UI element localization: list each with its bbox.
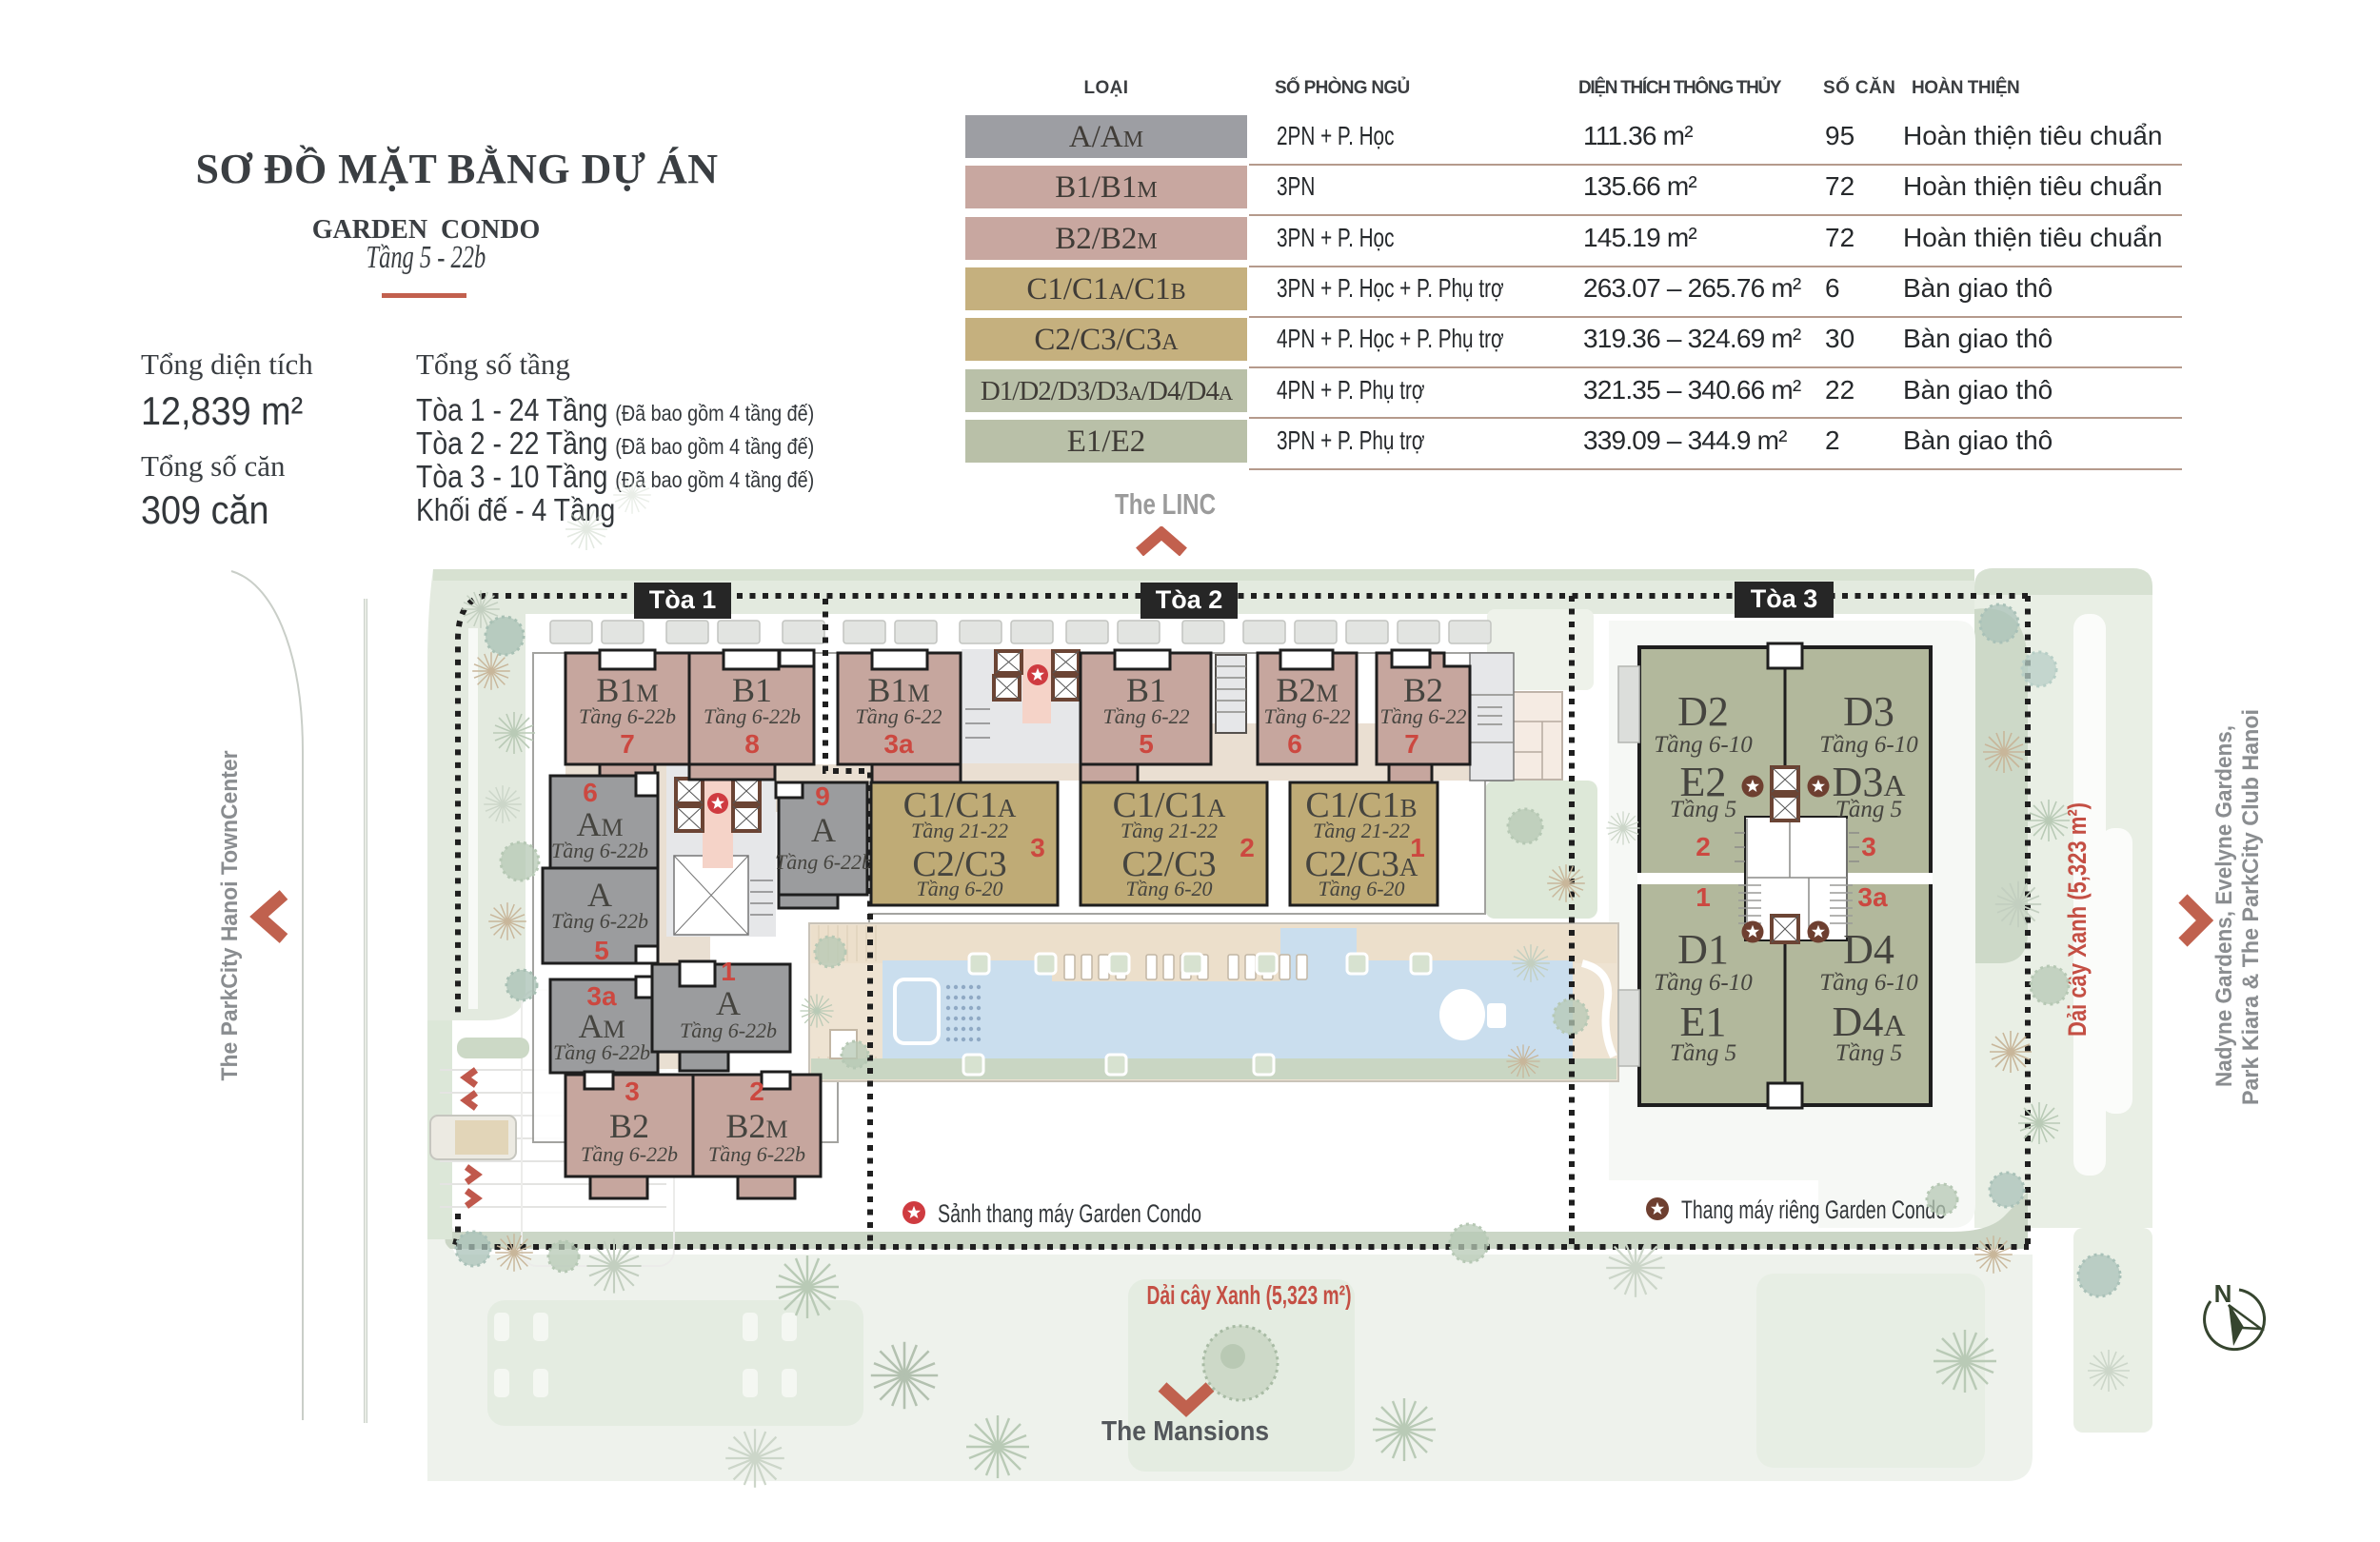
svg-text:3: 3 (625, 1077, 640, 1106)
svg-text:D1: D1 (1677, 926, 1729, 973)
svg-text:3a: 3a (883, 729, 914, 759)
svg-text:Tầng 5: Tầng 5 (1670, 797, 1736, 822)
svg-text:6: 6 (1287, 729, 1302, 759)
svg-text:B1: B1 (1126, 671, 1166, 709)
svg-text:Tầng 6-20: Tầng 6-20 (1125, 877, 1212, 900)
svg-text:Tầng 5: Tầng 5 (1835, 797, 1902, 822)
svg-text:Tầng 6-22b: Tầng 6-22b (553, 1040, 650, 1064)
svg-text:8: 8 (744, 729, 760, 759)
svg-text:1: 1 (1410, 833, 1425, 862)
svg-text:Tầng 6-22: Tầng 6-22 (1379, 704, 1466, 728)
svg-text:Tòa 1: Tòa 1 (649, 585, 717, 614)
svg-text:6: 6 (583, 778, 598, 807)
svg-text:Tầng 6-22b: Tầng 6-22b (708, 1142, 805, 1166)
svg-text:B1: B1 (732, 671, 772, 709)
svg-text:7: 7 (620, 729, 635, 759)
svg-text:D2: D2 (1677, 688, 1729, 735)
svg-text:A: A (716, 984, 741, 1022)
svg-text:2: 2 (749, 1077, 764, 1106)
svg-text:Nadyne Gardens, Evelyne Garden: Nadyne Gardens, Evelyne Gardens, (2211, 725, 2237, 1087)
svg-text:1: 1 (721, 957, 736, 986)
svg-text:The ParkCity Hanoi TownCenter: The ParkCity Hanoi TownCenter (217, 751, 243, 1081)
svg-text:Tầng 6-22b: Tầng 6-22b (551, 909, 648, 933)
svg-text:Tầng 6-20: Tầng 6-20 (1318, 877, 1404, 900)
svg-text:5: 5 (1139, 729, 1154, 759)
svg-text:N: N (2214, 1279, 2232, 1308)
svg-text:Tầng 6-22b: Tầng 6-22b (579, 704, 676, 728)
svg-text:Tầng 6-22: Tầng 6-22 (1102, 704, 1189, 728)
svg-text:A: A (587, 876, 612, 914)
svg-text:Tầng 6-10: Tầng 6-10 (1654, 970, 1753, 996)
svg-text:Tầng 6-10: Tầng 6-10 (1819, 732, 1918, 758)
svg-text:Tòa 3: Tòa 3 (1751, 584, 1818, 613)
svg-text:1: 1 (1696, 882, 1711, 912)
svg-text:Tầng 6-22b: Tầng 6-22b (775, 850, 872, 874)
svg-text:2: 2 (1696, 832, 1711, 861)
svg-text:Tầng 6-10: Tầng 6-10 (1819, 970, 1918, 996)
svg-text:3a: 3a (1857, 882, 1888, 912)
svg-text:Dải cây Xanh (5,323 m²): Dải cây Xanh (5,323 m²) (2063, 802, 2092, 1037)
svg-text:Park Kiara & The ParkCity Club: Park Kiara & The ParkCity Club Hanoi (2238, 709, 2264, 1105)
svg-text:3: 3 (1030, 833, 1045, 862)
svg-text:Tầng 6-22b: Tầng 6-22b (704, 704, 801, 728)
svg-text:Tầng 6-22b: Tầng 6-22b (581, 1142, 678, 1166)
svg-text:3a: 3a (586, 981, 617, 1011)
svg-text:Tầng 5: Tầng 5 (1835, 1040, 1902, 1066)
svg-text:Tầng 6-22: Tầng 6-22 (1263, 704, 1350, 728)
svg-text:Sảnh thang máy Garden Condo: Sảnh thang máy Garden Condo (938, 1199, 1201, 1228)
svg-text:B2: B2 (609, 1107, 649, 1145)
svg-text:9: 9 (815, 781, 830, 811)
svg-text:A: A (811, 811, 836, 849)
svg-text:Tầng 6-22b: Tầng 6-22b (551, 839, 648, 862)
svg-text:Tầng 6-20: Tầng 6-20 (916, 877, 1002, 900)
svg-text:D4: D4 (1843, 926, 1894, 973)
svg-text:Tầng 21-22: Tầng 21-22 (1121, 819, 1218, 842)
svg-text:5: 5 (594, 936, 609, 965)
svg-text:Tầng 21-22: Tầng 21-22 (911, 819, 1008, 842)
svg-text:E1: E1 (1680, 998, 1727, 1045)
svg-text:7: 7 (1404, 729, 1419, 759)
svg-text:Tầng 21-22: Tầng 21-22 (1313, 819, 1410, 842)
svg-text:B2: B2 (1403, 671, 1443, 709)
svg-text:Tầng 6-22b: Tầng 6-22b (680, 1018, 777, 1042)
svg-text:Tầng 6-10: Tầng 6-10 (1654, 732, 1753, 758)
svg-text:2: 2 (1240, 833, 1255, 862)
svg-text:Tầng 6-22: Tầng 6-22 (855, 704, 942, 728)
svg-text:The Mansions: The Mansions (1101, 1416, 1269, 1447)
svg-text:Tầng 5: Tầng 5 (1670, 1040, 1736, 1066)
svg-text:3: 3 (1861, 832, 1876, 861)
svg-text:Dải cây Xanh (5,323 m²): Dải cây Xanh (5,323 m²) (1147, 1280, 1352, 1310)
svg-text:Thang máy riêng Garden Condo: Thang máy riêng Garden Condo (1681, 1196, 1946, 1224)
svg-text:D3: D3 (1843, 688, 1894, 735)
svg-text:Tòa 2: Tòa 2 (1156, 585, 1223, 614)
